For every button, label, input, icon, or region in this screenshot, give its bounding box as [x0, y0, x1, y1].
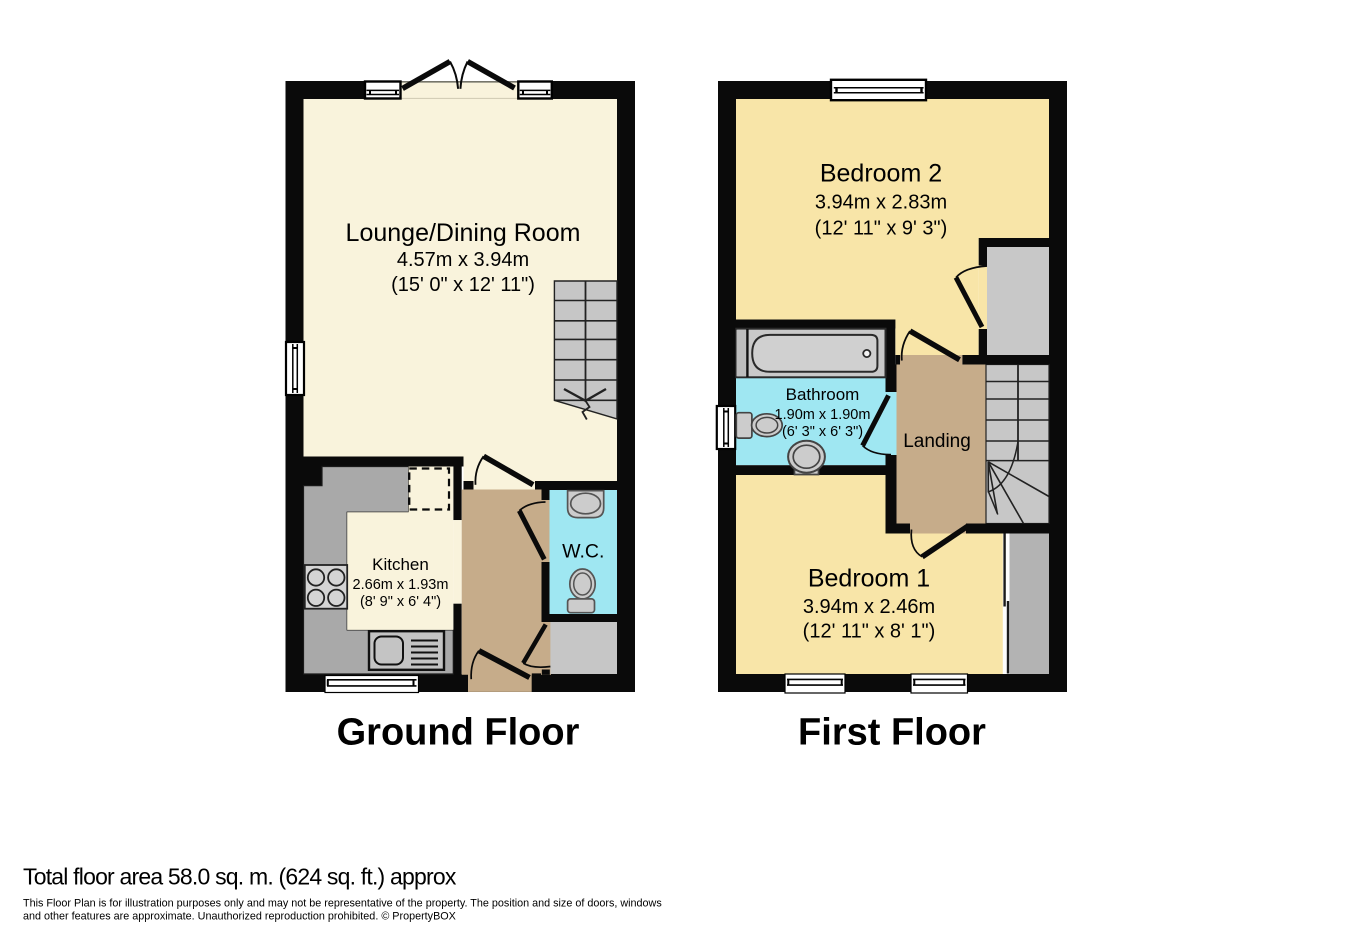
svg-text:Bedroom 2: Bedroom 2: [820, 160, 942, 188]
svg-text:(6' 3" x 6' 3"): (6' 3" x 6' 3"): [782, 424, 863, 440]
svg-text:3.94m x 2.46m: 3.94m x 2.46m: [803, 596, 935, 618]
svg-text:Kitchen: Kitchen: [372, 555, 429, 574]
svg-text:2.66m x 1.93m: 2.66m x 1.93m: [353, 577, 449, 593]
svg-text:Ground Floor: Ground Floor: [337, 712, 580, 754]
svg-text:Bathroom: Bathroom: [786, 385, 860, 404]
svg-text:and other features are approxi: and other features are approximate. Unau…: [23, 911, 456, 923]
svg-text:(15' 0" x 12' 11"): (15' 0" x 12' 11"): [391, 274, 535, 296]
svg-text:3.94m x 2.83m: 3.94m x 2.83m: [815, 192, 947, 214]
svg-text:1.90m x 1.90m: 1.90m x 1.90m: [775, 407, 871, 423]
svg-text:First Floor: First Floor: [798, 712, 986, 754]
svg-text:This Floor Plan is for illustr: This Floor Plan is for illustration purp…: [23, 898, 662, 910]
svg-text:Lounge/Dining Room: Lounge/Dining Room: [346, 219, 581, 247]
svg-text:W.C.: W.C.: [562, 541, 604, 563]
svg-text:Bedroom 1: Bedroom 1: [808, 565, 930, 593]
svg-text:(12' 11" x 9' 3"): (12' 11" x 9' 3"): [815, 218, 948, 240]
svg-text:Total floor area 58.0 sq. m. (: Total floor area 58.0 sq. m. (624 sq. ft…: [23, 864, 457, 890]
svg-text:Landing: Landing: [903, 431, 971, 452]
svg-text:(12' 11" x 8' 1"): (12' 11" x 8' 1"): [803, 621, 936, 643]
svg-text:4.57m x 3.94m: 4.57m x 3.94m: [397, 249, 529, 271]
svg-text:(8' 9" x 6' 4"): (8' 9" x 6' 4"): [360, 594, 441, 610]
